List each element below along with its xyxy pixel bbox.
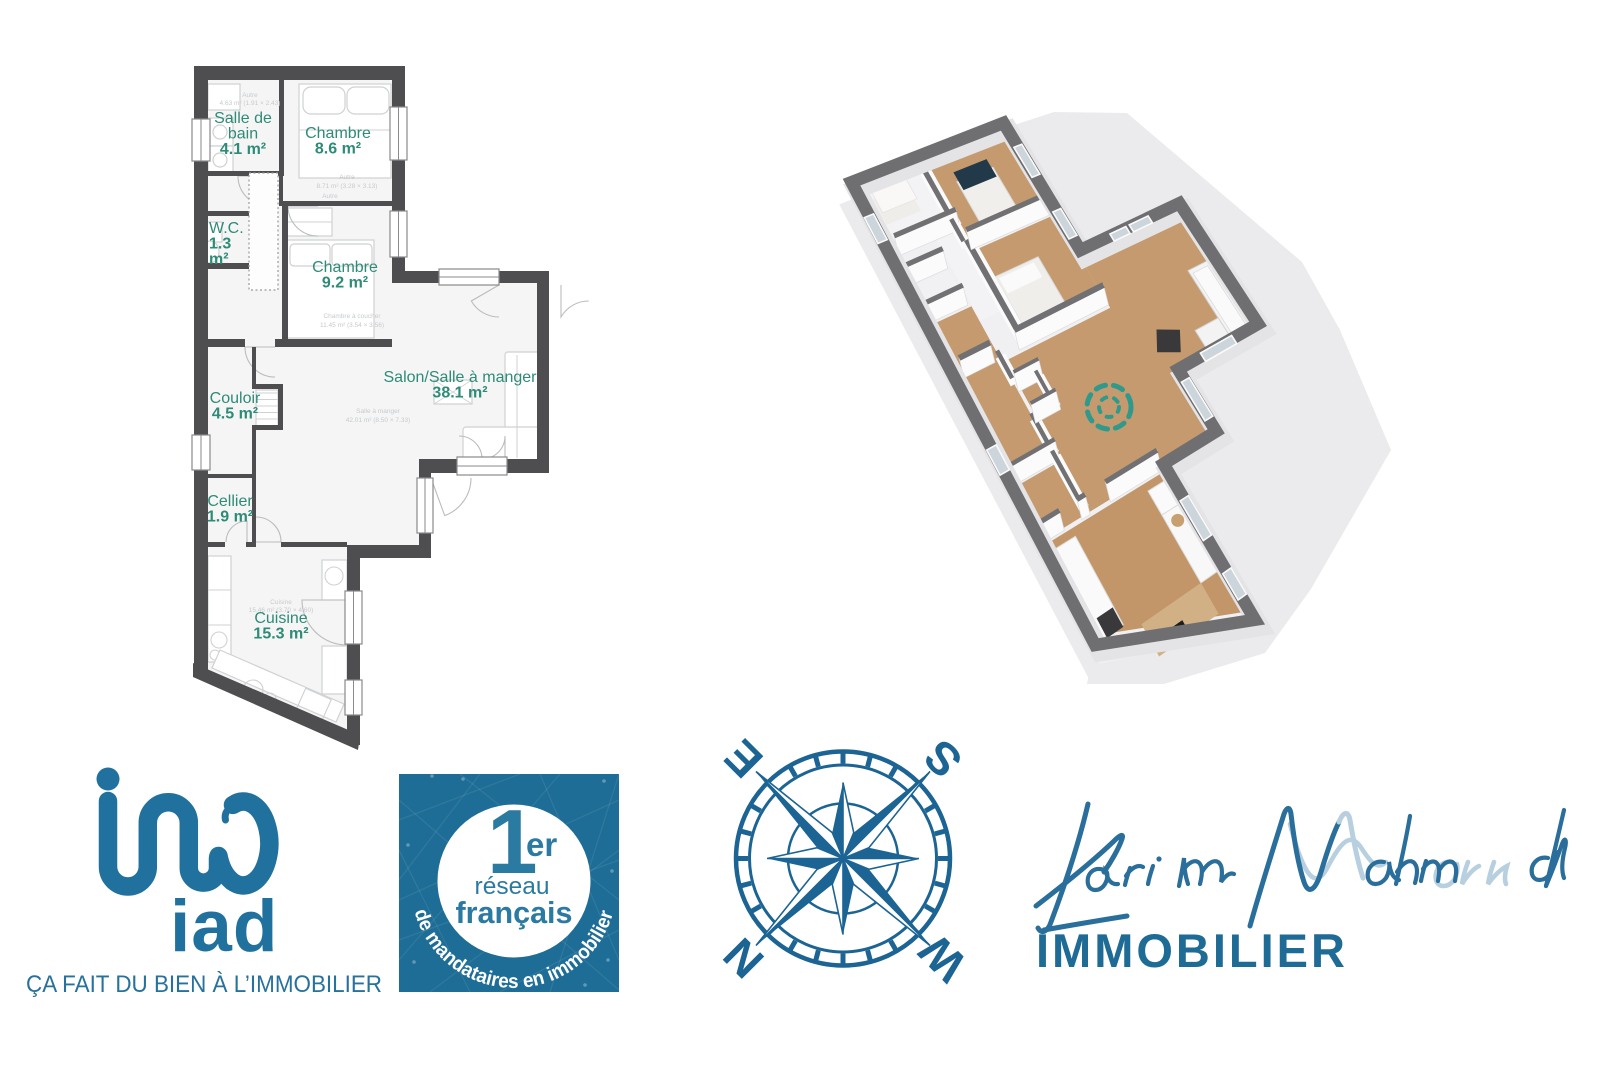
svg-text:1.3: 1.3: [209, 236, 231, 253]
svg-text:4.63 m² (1.91 × 2.43): 4.63 m² (1.91 × 2.43): [220, 100, 281, 107]
svg-text:Cellier: Cellier: [207, 493, 253, 510]
svg-text:4.5 m²: 4.5 m²: [212, 406, 258, 423]
svg-text:15.3 m²: 15.3 m²: [253, 626, 308, 643]
svg-text:Couloir: Couloir: [210, 390, 261, 407]
svg-text:W.C.: W.C.: [209, 220, 244, 237]
svg-text:Salle à manger: Salle à manger: [356, 408, 401, 415]
svg-text:11.45 m² (3.54 × 3.56): 11.45 m² (3.54 × 3.56): [320, 322, 384, 329]
svg-text:1.9 m²: 1.9 m²: [207, 509, 253, 526]
svg-text:42.01 m² (8.50 × 7.33): 42.01 m² (8.50 × 7.33): [346, 417, 411, 424]
svg-text:Chambre à coucher: Chambre à coucher: [323, 313, 381, 320]
svg-text:Chambre: Chambre: [305, 125, 371, 142]
svg-text:4.1 m²: 4.1 m²: [220, 141, 266, 158]
svg-text:Cuisine: Cuisine: [270, 599, 292, 606]
svg-text:ÇA FAIT DU BIEN À L’IMMOBILIER: ÇA FAIT DU BIEN À L’IMMOBILIER: [26, 971, 382, 998]
svg-text:9.2 m²: 9.2 m²: [322, 275, 368, 292]
svg-text:IMMOBILIER: IMMOBILIER: [1036, 924, 1348, 977]
svg-text:Salon/Salle à manger: Salon/Salle à manger: [384, 369, 538, 386]
svg-text:français: français: [456, 896, 573, 930]
svg-text:8.6 m²: 8.6 m²: [315, 141, 361, 158]
svg-text:m²: m²: [209, 251, 229, 268]
svg-text:Salle de: Salle de: [214, 110, 272, 127]
svg-text:Cuisine: Cuisine: [254, 610, 307, 627]
svg-text:er: er: [526, 826, 557, 863]
svg-text:8.71 m² (3.28 × 3.13): 8.71 m² (3.28 × 3.13): [317, 183, 378, 190]
svg-text:Autre: Autre: [242, 92, 258, 99]
svg-text:iad: iad: [170, 886, 278, 967]
svg-text:Autre: Autre: [322, 193, 338, 200]
svg-text:bain: bain: [228, 126, 258, 143]
svg-text:Autre: Autre: [339, 174, 355, 181]
svg-text:Chambre: Chambre: [312, 259, 378, 276]
svg-text:38.1 m²: 38.1 m²: [432, 385, 487, 402]
